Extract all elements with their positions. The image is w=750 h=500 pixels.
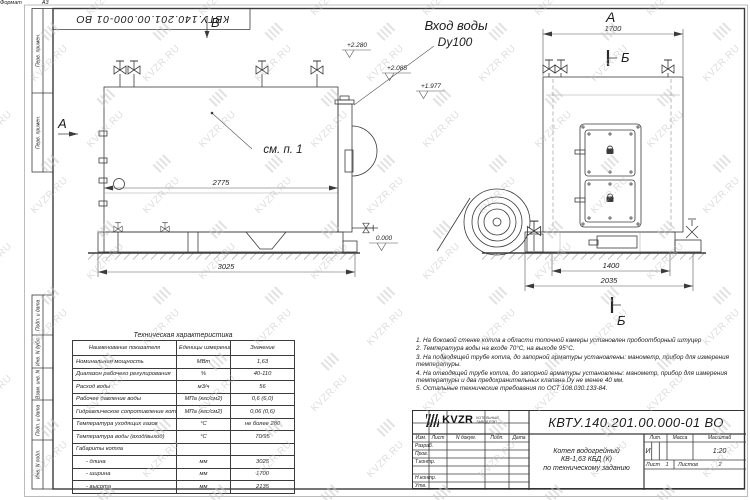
- document-name-line: Котел водогрейный: [553, 448, 620, 457]
- spec-cell: - длина: [73, 456, 177, 469]
- spec-header-row: Наименование показателя Еденицы измерени…: [73, 341, 295, 356]
- frame-label: Взам. инв. N: [33, 368, 44, 400]
- spec-table-block: Техническая характеристика Наименование …: [72, 332, 294, 494]
- spec-cell: 56: [231, 381, 295, 394]
- spec-cell: МПа (кгс/см2): [177, 406, 231, 419]
- spec-row: Габариты котла: [73, 443, 295, 456]
- rev-header: Лист: [429, 434, 447, 442]
- side-view-dimensions: 2775 3025 +2.280 +2.085 +1.977 0.000 Вхо…: [57, 15, 488, 277]
- svg-text:А: А: [57, 116, 67, 131]
- signature-row-label: Т.контр.: [413, 458, 449, 466]
- valve-icon: [114, 61, 126, 74]
- spec-cell: 1,63: [231, 356, 295, 369]
- spec-row: - ширинамм1700: [73, 468, 295, 481]
- door-swing-arc: [352, 126, 377, 176]
- sheet-label: Лист: [646, 460, 660, 469]
- valve-icon: [161, 223, 169, 232]
- svg-text:Dy100: Dy100: [438, 35, 473, 49]
- signature-row-label: [413, 466, 449, 474]
- valve-icon: [256, 61, 268, 74]
- note-item: 1. На боковой стенке котла в области топ…: [416, 337, 745, 344]
- sheet-designation-rotated: КВТУ.140.201.00.000-01 ВО: [55, 9, 250, 29]
- spec-cell: 40-110: [231, 368, 295, 381]
- svg-text:см. п. 1: см. п. 1: [263, 144, 302, 156]
- valve-icon: [128, 61, 140, 74]
- frame-label: Подп. и дата: [33, 295, 44, 335]
- ground-hatch: [88, 254, 355, 260]
- spec-cell: °С: [177, 418, 231, 431]
- spec-row: Расход водым3/ч56: [73, 381, 295, 394]
- spec-cell: Температура уходящих газов: [73, 418, 177, 431]
- spec-row: - длинамм3025: [73, 456, 295, 469]
- scale-header: Масштаб: [693, 434, 746, 442]
- svg-text:А: А: [605, 9, 615, 25]
- note-item: 5. Остальные технические требования по О…: [416, 385, 745, 392]
- scale-value: 1:20: [693, 442, 746, 460]
- ground-hatch: [482, 254, 704, 260]
- spec-cell: [177, 443, 231, 456]
- svg-text:1700: 1700: [605, 24, 623, 33]
- lit-header: Лит.: [644, 434, 667, 442]
- spec-cell: Гидравлическое сопротивление котла: [73, 406, 177, 419]
- rev-header: Изм.: [413, 434, 429, 442]
- drawing-sheet: KVZR.RUKVZR.RUKVZR.RUKVZR.RUKVZR.RUKVZR.…: [0, 0, 750, 500]
- spec-row: - высотамм2135: [73, 481, 295, 494]
- spec-cell: Рабочее давление воды: [73, 393, 177, 406]
- svg-text:+2.280: +2.280: [347, 42, 367, 49]
- spec-cell: 3025: [231, 456, 295, 469]
- document-name: Котел водогрейный КВ-1,63 КБД (К) по тех…: [529, 434, 644, 487]
- spec-cell: Номинальная мощность: [73, 356, 177, 369]
- note-item: 3. На подводящей трубе котла, до запорно…: [416, 354, 745, 369]
- blower-fan: [437, 189, 543, 255]
- valve-icon: [114, 223, 122, 232]
- frame-label: Инв. N подл.: [33, 440, 44, 489]
- spec-cell: МВт: [177, 356, 231, 369]
- signature-row-label: Пров.: [413, 450, 449, 458]
- spec-cell: Габариты котла: [73, 443, 177, 456]
- title-block: КВТУ.140.201.00.000-01 ВО Изм. Лист N до…: [412, 410, 745, 489]
- furnace-doors: [575, 124, 641, 227]
- spec-cell: Расход воды: [73, 381, 177, 394]
- door-lock-icon: [607, 146, 614, 154]
- spec-cell: - высота: [73, 481, 177, 494]
- rev-header: Подп.: [485, 434, 509, 442]
- front-view-dimensions: А 1700 Б 1400 2035 Б: [525, 9, 693, 328]
- valve-icon: [662, 60, 674, 73]
- spec-row: Температура уходящих газов°Сне более 280: [73, 418, 295, 431]
- spec-cell: Температура воды (вход/выход): [73, 431, 177, 444]
- frame-label: Перв. примен.: [33, 93, 44, 172]
- technical-notes: 1. На боковой стенке котла в области топ…: [416, 337, 745, 394]
- spec-row: Номинальная мощностьМВт1,63: [73, 356, 295, 369]
- spec-row: Рабочее давление водыМПа (кгс/см2)0,6 (6…: [73, 393, 295, 406]
- spec-header: Значение: [231, 341, 295, 356]
- spec-cell: 1700: [231, 468, 295, 481]
- rev-header: N докум.: [447, 434, 485, 442]
- spec-cell: 0,6 (6,0): [231, 393, 295, 406]
- sheets-label: Листов: [676, 460, 700, 469]
- valve-icon: [555, 60, 567, 73]
- signature-row-label: Утв.: [413, 482, 449, 490]
- note-item: 4. На отводящей трубе котла, до запорной…: [416, 370, 745, 385]
- spec-cell: мм: [177, 481, 231, 494]
- spec-cell: мм: [177, 456, 231, 469]
- frame-label: Подп. и дата: [33, 400, 44, 440]
- spec-table: Наименование показателя Еденицы измерени…: [72, 340, 295, 494]
- boiler-side-view: [88, 61, 378, 260]
- svg-text:+2.085: +2.085: [387, 65, 407, 72]
- svg-text:2035: 2035: [600, 276, 619, 285]
- spec-cell: %: [177, 368, 231, 381]
- mass-header: Масса: [667, 434, 693, 442]
- svg-text:Б: Б: [621, 50, 630, 65]
- frame-label: Инв. N дубл.: [33, 335, 44, 368]
- lit-value: И: [644, 442, 652, 460]
- spec-cell: [231, 443, 295, 456]
- svg-text:Вход воды: Вход воды: [424, 18, 488, 33]
- spec-cell: не более 280: [231, 418, 295, 431]
- door-lock-icon: [607, 194, 614, 202]
- right-valve: [686, 219, 698, 238]
- svg-text:2775: 2775: [212, 178, 231, 187]
- signature-row-label: Н.контр.: [413, 474, 449, 482]
- signature-row-label: Разраб.: [413, 442, 449, 450]
- document-name-line: по техническому заданию: [543, 465, 630, 474]
- document-name-line: КВ-1,63 КБД (К): [561, 456, 612, 465]
- sheets-value: 2: [713, 460, 727, 469]
- spec-table-title: Техническая характеристика: [72, 332, 294, 339]
- spec-cell: м3/ч: [177, 381, 231, 394]
- spec-row: Температура воды (вход/выход)°С70/95: [73, 431, 295, 444]
- valve-icon: [527, 221, 540, 235]
- spec-cell: МПа (кгс/см2): [177, 393, 231, 406]
- spec-cell: 2135: [231, 481, 295, 494]
- frame-label: Перв. примен.: [33, 8, 44, 93]
- note-item: 2. Температура воды на входе 70°С, на вы…: [416, 345, 745, 352]
- spec-row: Диапазон рабочего регулирования%40-110: [73, 368, 295, 381]
- sheet-value: 1: [661, 460, 673, 469]
- spec-cell: мм: [177, 468, 231, 481]
- svg-text:+1.977: +1.977: [421, 83, 441, 90]
- door-bolts: [582, 126, 639, 225]
- svg-text:Б: Б: [617, 313, 626, 328]
- spec-cell: 70/95: [231, 431, 295, 444]
- boiler-front-view: [437, 60, 706, 260]
- spec-cell: - ширина: [73, 468, 177, 481]
- spec-header: Наименование показателя: [73, 341, 177, 356]
- svg-text:3025: 3025: [218, 262, 236, 271]
- title-block-designation: КВТУ.140.201.00.000-01 ВО: [529, 411, 743, 434]
- spec-header: Еденицы измерения: [177, 341, 231, 356]
- spec-cell: 0,06 (0,6): [231, 406, 295, 419]
- spec-cell: °С: [177, 431, 231, 444]
- spec-cell: Диапазон рабочего регулирования: [73, 368, 177, 381]
- valve-icon: [311, 61, 323, 74]
- svg-text:1400: 1400: [603, 261, 621, 270]
- valve-icon: [543, 60, 555, 73]
- spec-row: Гидравлическое сопротивление котлаМПа (к…: [73, 406, 295, 419]
- svg-text:0.000: 0.000: [376, 235, 393, 242]
- rev-header: Дата: [509, 434, 529, 442]
